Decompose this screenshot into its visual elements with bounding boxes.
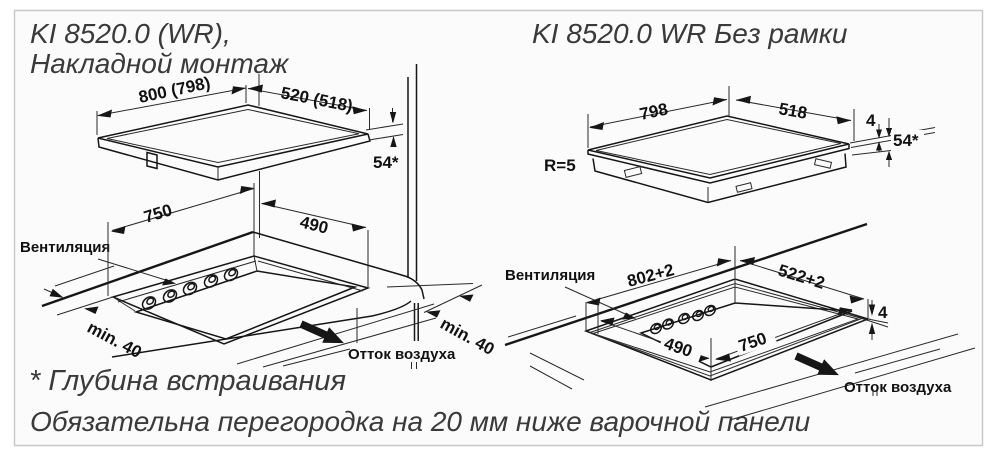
svg-text:Обязательна перегородка на 20: Обязательна перегородка на 20 мм ниже ва… — [30, 406, 811, 437]
svg-text:Накладной монтаж: Накладной монтаж — [30, 48, 290, 79]
svg-text:Отток воздуха: Отток воздуха — [844, 379, 952, 396]
svg-text:4: 4 — [866, 111, 876, 130]
svg-text:KI 8520.0 (WR),: KI 8520.0 (WR), — [30, 18, 231, 49]
svg-text:54*: 54* — [893, 131, 919, 150]
svg-text:* Глубина встраивания: * Глубина встраивания — [29, 365, 346, 397]
svg-text:54*: 54* — [373, 153, 399, 172]
svg-text:Вентиляция: Вентиляция — [20, 239, 110, 256]
svg-text:4: 4 — [878, 303, 888, 322]
svg-text:Отток воздуха: Отток воздуха — [348, 346, 456, 363]
svg-text:R=5: R=5 — [544, 156, 576, 175]
svg-text:Вентиляция: Вентиляция — [505, 267, 595, 284]
svg-text:KI 8520.0 WR Без рамки: KI 8520.0 WR Без рамки — [532, 18, 848, 49]
